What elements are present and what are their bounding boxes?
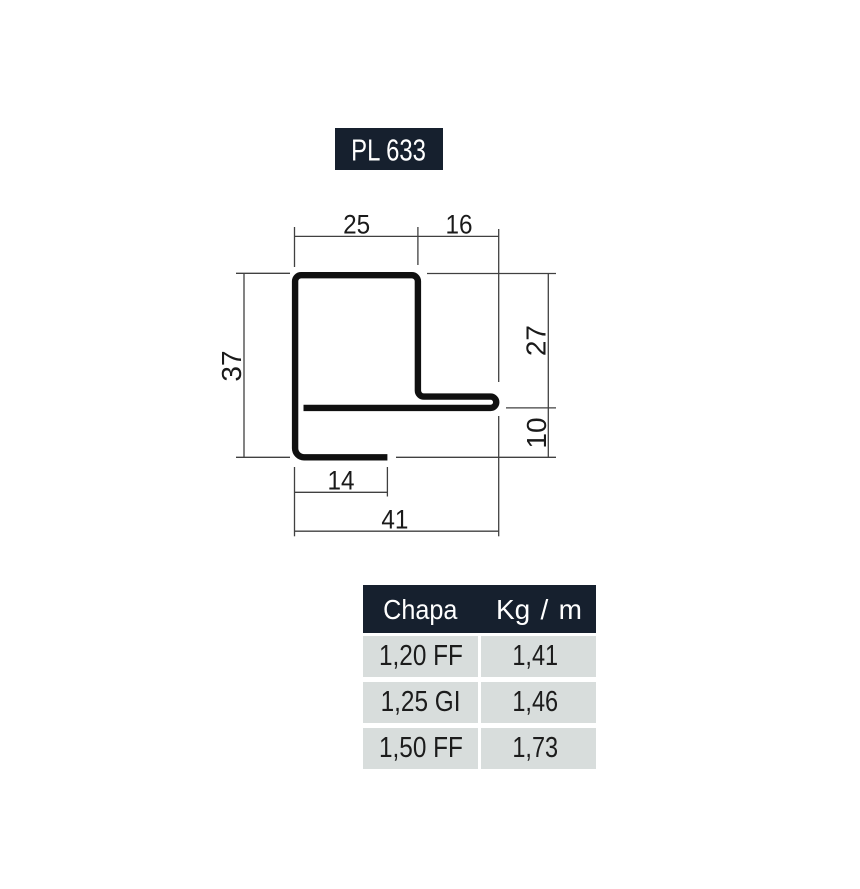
svg-text:27: 27 [521, 325, 552, 356]
svg-text:10: 10 [521, 417, 552, 448]
svg-text:37: 37 [216, 350, 247, 381]
svg-text:14: 14 [327, 466, 354, 495]
svg-text:41: 41 [381, 505, 408, 534]
svg-text:16: 16 [445, 211, 472, 240]
svg-text:25: 25 [343, 211, 370, 240]
